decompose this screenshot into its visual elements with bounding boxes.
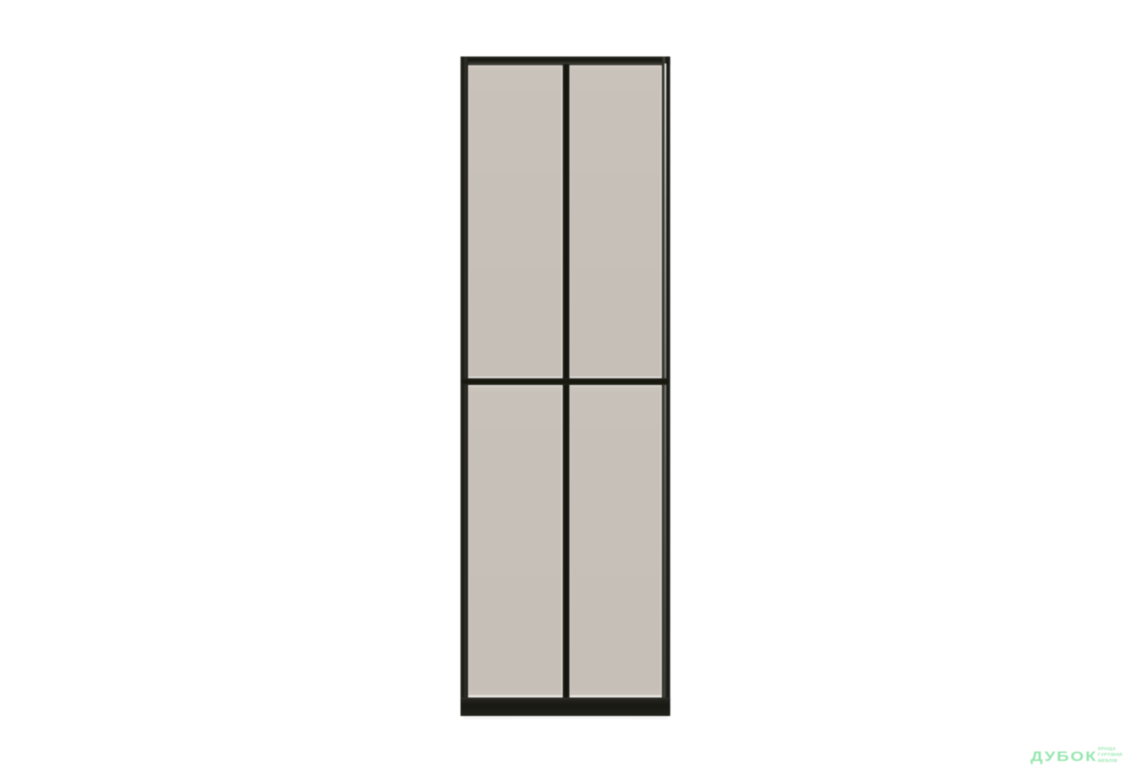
svg-text:ГУРТІВНЯ: ГУРТІВНЯ (1098, 752, 1122, 757)
svg-text:МЕБЛІВ: МЕБЛІВ (1098, 758, 1118, 763)
svg-text:КРАЩА: КРАЩА (1098, 746, 1116, 751)
svg-text:ДУБОК: ДУБОК (1031, 749, 1098, 764)
